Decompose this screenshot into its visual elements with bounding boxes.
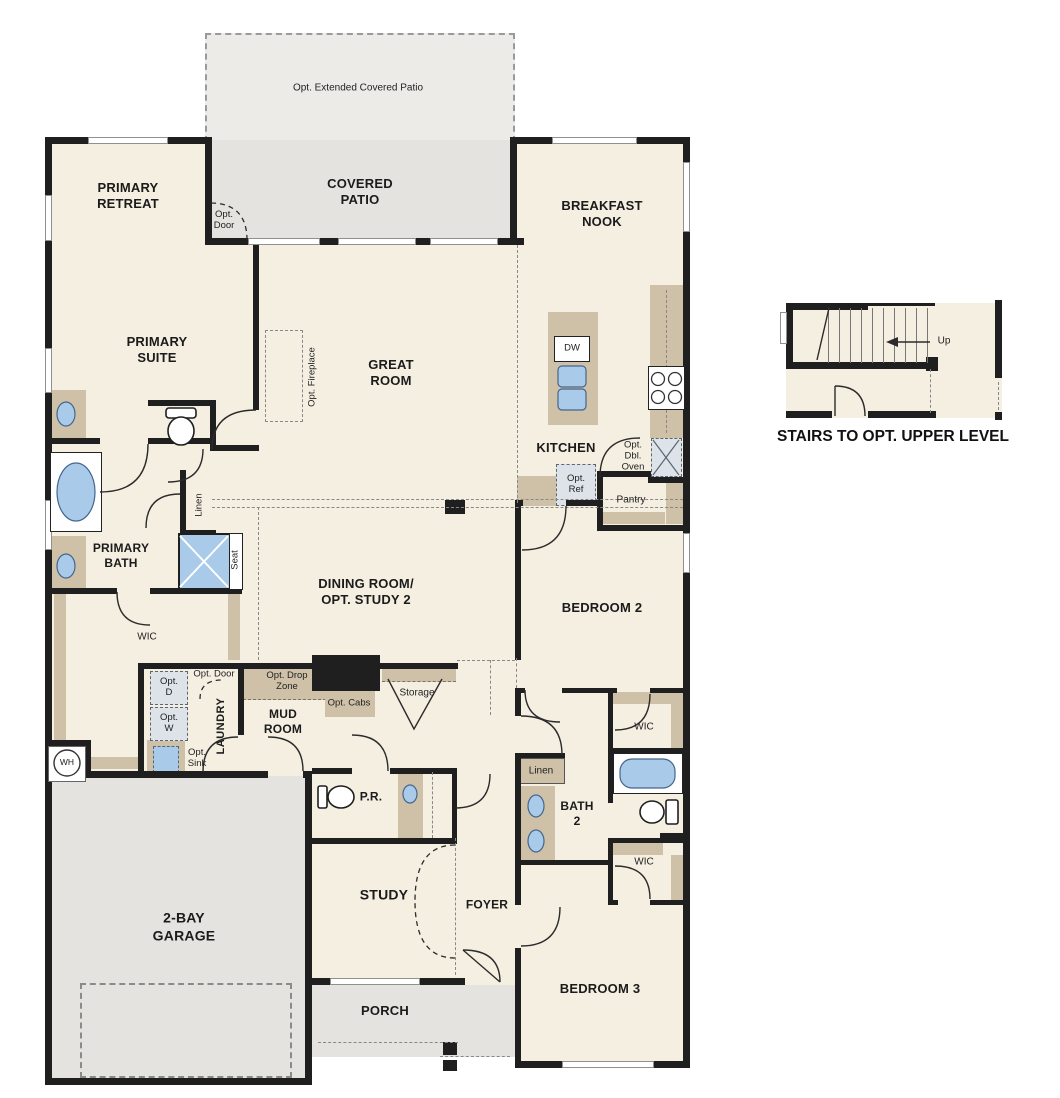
wall	[180, 470, 186, 530]
wall	[305, 778, 312, 1085]
wall	[515, 688, 521, 716]
wall	[210, 400, 216, 450]
porch-step-line	[440, 1056, 510, 1057]
wall	[608, 693, 613, 750]
wic-shelf	[86, 757, 140, 769]
opt-ref-label: Opt. Ref	[567, 474, 585, 496]
wall	[253, 245, 259, 410]
opt-ext-patio-label: Opt. Extended Covered Patio	[293, 82, 423, 94]
stairs-caption: STAIRS TO OPT. UPPER LEVEL	[777, 428, 1009, 446]
wic-shelf	[613, 692, 683, 704]
bedroom3-label: BEDROOM 3	[560, 981, 641, 997]
wall	[515, 948, 521, 1068]
wh-label: WH	[60, 758, 74, 768]
hall-boundary-line	[490, 660, 491, 715]
wic-shelf	[671, 855, 683, 903]
wall	[650, 688, 683, 693]
pantry-shelf	[666, 483, 683, 524]
opt-sink-box	[153, 746, 179, 773]
primary-suite-label: PRIMARY SUITE	[127, 334, 188, 367]
pr-label: P.R.	[360, 790, 383, 805]
window	[330, 978, 420, 985]
wall	[786, 411, 832, 418]
window	[552, 137, 637, 144]
wall	[597, 471, 603, 531]
closet-boundary-line	[432, 772, 433, 838]
opt-drop-zone-label: Opt. Drop Zone	[266, 671, 307, 693]
opt-cabs-label: Opt. Cabs	[328, 699, 371, 710]
stairs-dashed-line	[998, 382, 999, 410]
linen-label: Linen	[195, 493, 206, 516]
wall	[312, 838, 457, 844]
hall-boundary-line	[516, 658, 517, 688]
opt-d-label: Opt. D	[160, 677, 178, 699]
bath2-label: BATH 2	[560, 799, 593, 829]
storage-label: Storage	[399, 687, 434, 699]
wall	[205, 137, 212, 245]
porch-label: PORCH	[361, 1003, 409, 1019]
window	[780, 312, 787, 344]
wall	[210, 445, 259, 451]
counter-centerline	[666, 290, 667, 433]
stairs-dashed-line	[930, 369, 931, 413]
storage-shelf	[382, 669, 456, 682]
wall	[868, 411, 928, 418]
wall	[138, 663, 144, 777]
primary-retreat-label: PRIMARY RETREAT	[97, 180, 159, 213]
breakfast-nook-label: BREAKFAST NOOK	[561, 198, 642, 231]
wall	[608, 900, 618, 905]
opt-door-laundry-label: Opt. Door	[193, 670, 234, 681]
window	[45, 195, 52, 241]
wall	[683, 137, 690, 1068]
dining-room-label: DINING ROOM/ OPT. STUDY 2	[318, 576, 414, 609]
wall	[515, 753, 565, 758]
window	[88, 137, 168, 144]
hall-boundary-line	[457, 660, 515, 661]
opt-dbl-oven-label: Opt. Dbl. Oven	[622, 441, 645, 474]
floor-plan: Opt. Extended Covered Patio COVERED PATI…	[0, 0, 1060, 1098]
wall	[515, 755, 521, 905]
bath-vanity-counter	[50, 536, 86, 594]
opt-door-patio-label: Opt. Door	[214, 210, 235, 232]
wall	[138, 663, 458, 669]
primary-bath-label: PRIMARY BATH	[93, 541, 149, 571]
opt-sink-label: Opt. Sink	[188, 748, 206, 770]
up-label: Up	[938, 335, 951, 347]
wic-label: WIC	[137, 631, 156, 643]
wall	[995, 412, 1002, 420]
wall	[786, 303, 793, 369]
dining-boundary-line	[212, 499, 683, 500]
foyer-floor	[455, 655, 517, 985]
wall	[390, 768, 457, 774]
porch-floor	[312, 985, 517, 1057]
cooktop-box	[648, 366, 685, 410]
wall	[45, 1078, 312, 1085]
wall	[148, 400, 216, 406]
pantry-shelf	[603, 512, 665, 524]
bath-vanity-counter	[50, 390, 86, 438]
stair-treads	[828, 308, 935, 363]
opt-fireplace-label: Opt. Fireplace	[308, 347, 319, 407]
wall	[650, 900, 683, 905]
foyer-label: FOYER	[466, 898, 508, 913]
garage-label: 2-BAY GARAGE	[153, 910, 216, 945]
mud-room-label: MUD ROOM	[264, 707, 302, 737]
window	[338, 238, 416, 245]
wic-shelf	[54, 592, 66, 760]
window	[562, 1061, 654, 1068]
linen2-label: Linen	[529, 765, 553, 777]
wic-label: WIC	[634, 856, 653, 868]
wall	[995, 300, 1002, 378]
primary-shower	[178, 533, 231, 590]
study-floor	[307, 775, 457, 985]
wall	[303, 771, 312, 778]
kitchen-island	[548, 312, 598, 425]
wall	[45, 438, 100, 444]
dining-boundary-line	[212, 507, 683, 508]
garage-door-area	[80, 983, 292, 1078]
laundry-label: LAUNDRY	[215, 698, 227, 755]
bedroom2-label: BEDROOM 2	[562, 600, 643, 616]
wall	[515, 860, 613, 865]
wall	[660, 833, 683, 840]
primary-tub-surround	[50, 452, 102, 532]
wall	[786, 362, 936, 369]
study-french-door-line	[455, 838, 456, 975]
seat-label: Seat	[231, 550, 242, 570]
wic-shelf	[613, 843, 663, 855]
window	[683, 162, 690, 232]
wall	[312, 768, 352, 774]
wall	[597, 525, 689, 531]
wall	[920, 411, 936, 418]
window	[45, 348, 52, 393]
opt-dbl-oven-box	[651, 438, 682, 477]
bath2-vanity	[519, 786, 555, 862]
wall	[148, 438, 216, 444]
wall	[45, 137, 52, 1085]
opt-w-label: Opt. W	[160, 713, 178, 735]
wic-label: WIC	[634, 721, 653, 733]
wall	[608, 843, 613, 905]
wic-shelf	[671, 704, 683, 752]
pr-vanity	[398, 772, 423, 838]
wall	[45, 588, 117, 594]
dining-boundary-line	[258, 507, 259, 660]
wall	[443, 1042, 457, 1055]
dw-label: DW	[564, 344, 580, 355]
wall	[312, 655, 380, 691]
pantry-label: Pantry	[617, 494, 646, 506]
wall	[452, 768, 457, 838]
porch-step-line	[318, 1042, 458, 1043]
wall	[648, 477, 683, 483]
window	[248, 238, 320, 245]
window	[430, 238, 498, 245]
wall	[238, 663, 244, 735]
bath2-tub-surround	[613, 753, 683, 794]
opt-fireplace-box	[265, 330, 303, 422]
study-label: STUDY	[360, 886, 408, 904]
window	[683, 533, 690, 573]
covered-patio-label: COVERED PATIO	[327, 176, 393, 209]
great-room-label: GREAT ROOM	[368, 357, 414, 390]
kitchen-label: KITCHEN	[536, 440, 595, 456]
wall	[510, 137, 517, 245]
wall	[443, 1060, 457, 1071]
wic-shelf	[228, 590, 240, 660]
wall	[515, 500, 521, 660]
kitchen-boundary-line	[517, 245, 518, 503]
wall	[868, 303, 935, 306]
